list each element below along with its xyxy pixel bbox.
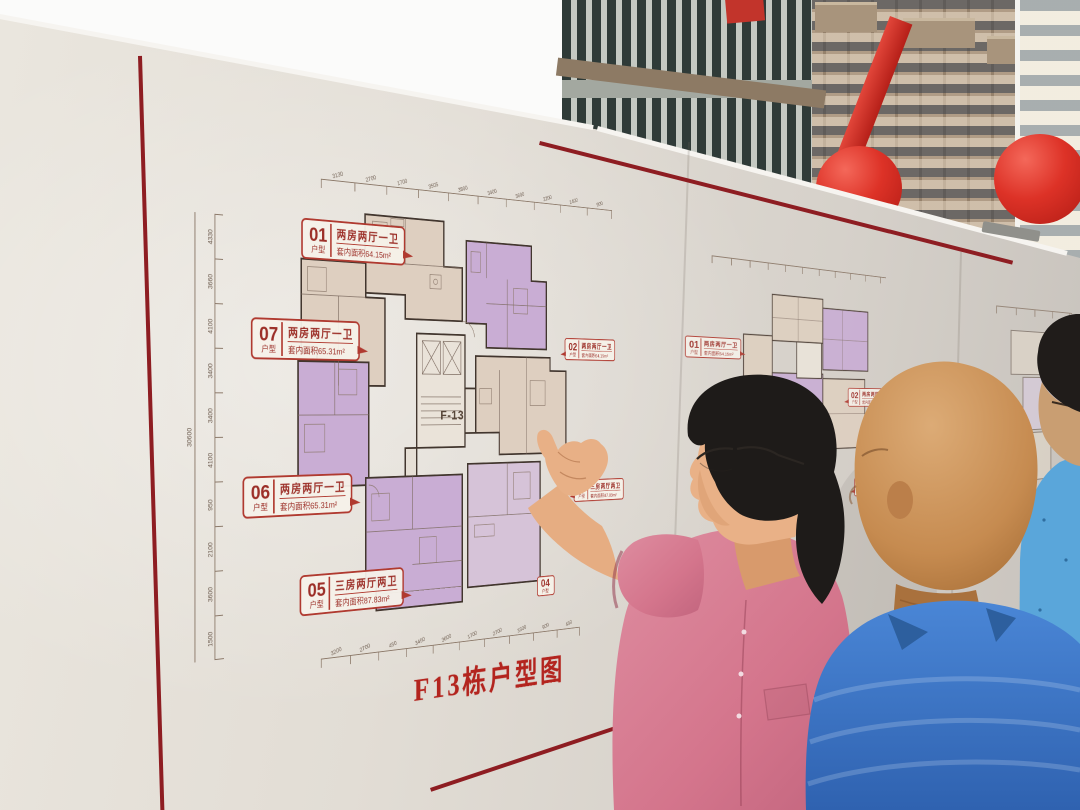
shirt-pocket bbox=[764, 684, 810, 720]
pointing-forearm bbox=[528, 484, 618, 580]
shirt-button bbox=[737, 714, 742, 719]
ear bbox=[887, 481, 913, 519]
bald-head bbox=[855, 362, 1038, 591]
shirt-button bbox=[739, 672, 744, 677]
pointing-hand bbox=[537, 430, 608, 496]
people-overlay bbox=[0, 0, 1080, 810]
shirt-button bbox=[742, 630, 747, 635]
photo-scene: 30600 4330366041003400340041009502100360… bbox=[0, 0, 1080, 810]
